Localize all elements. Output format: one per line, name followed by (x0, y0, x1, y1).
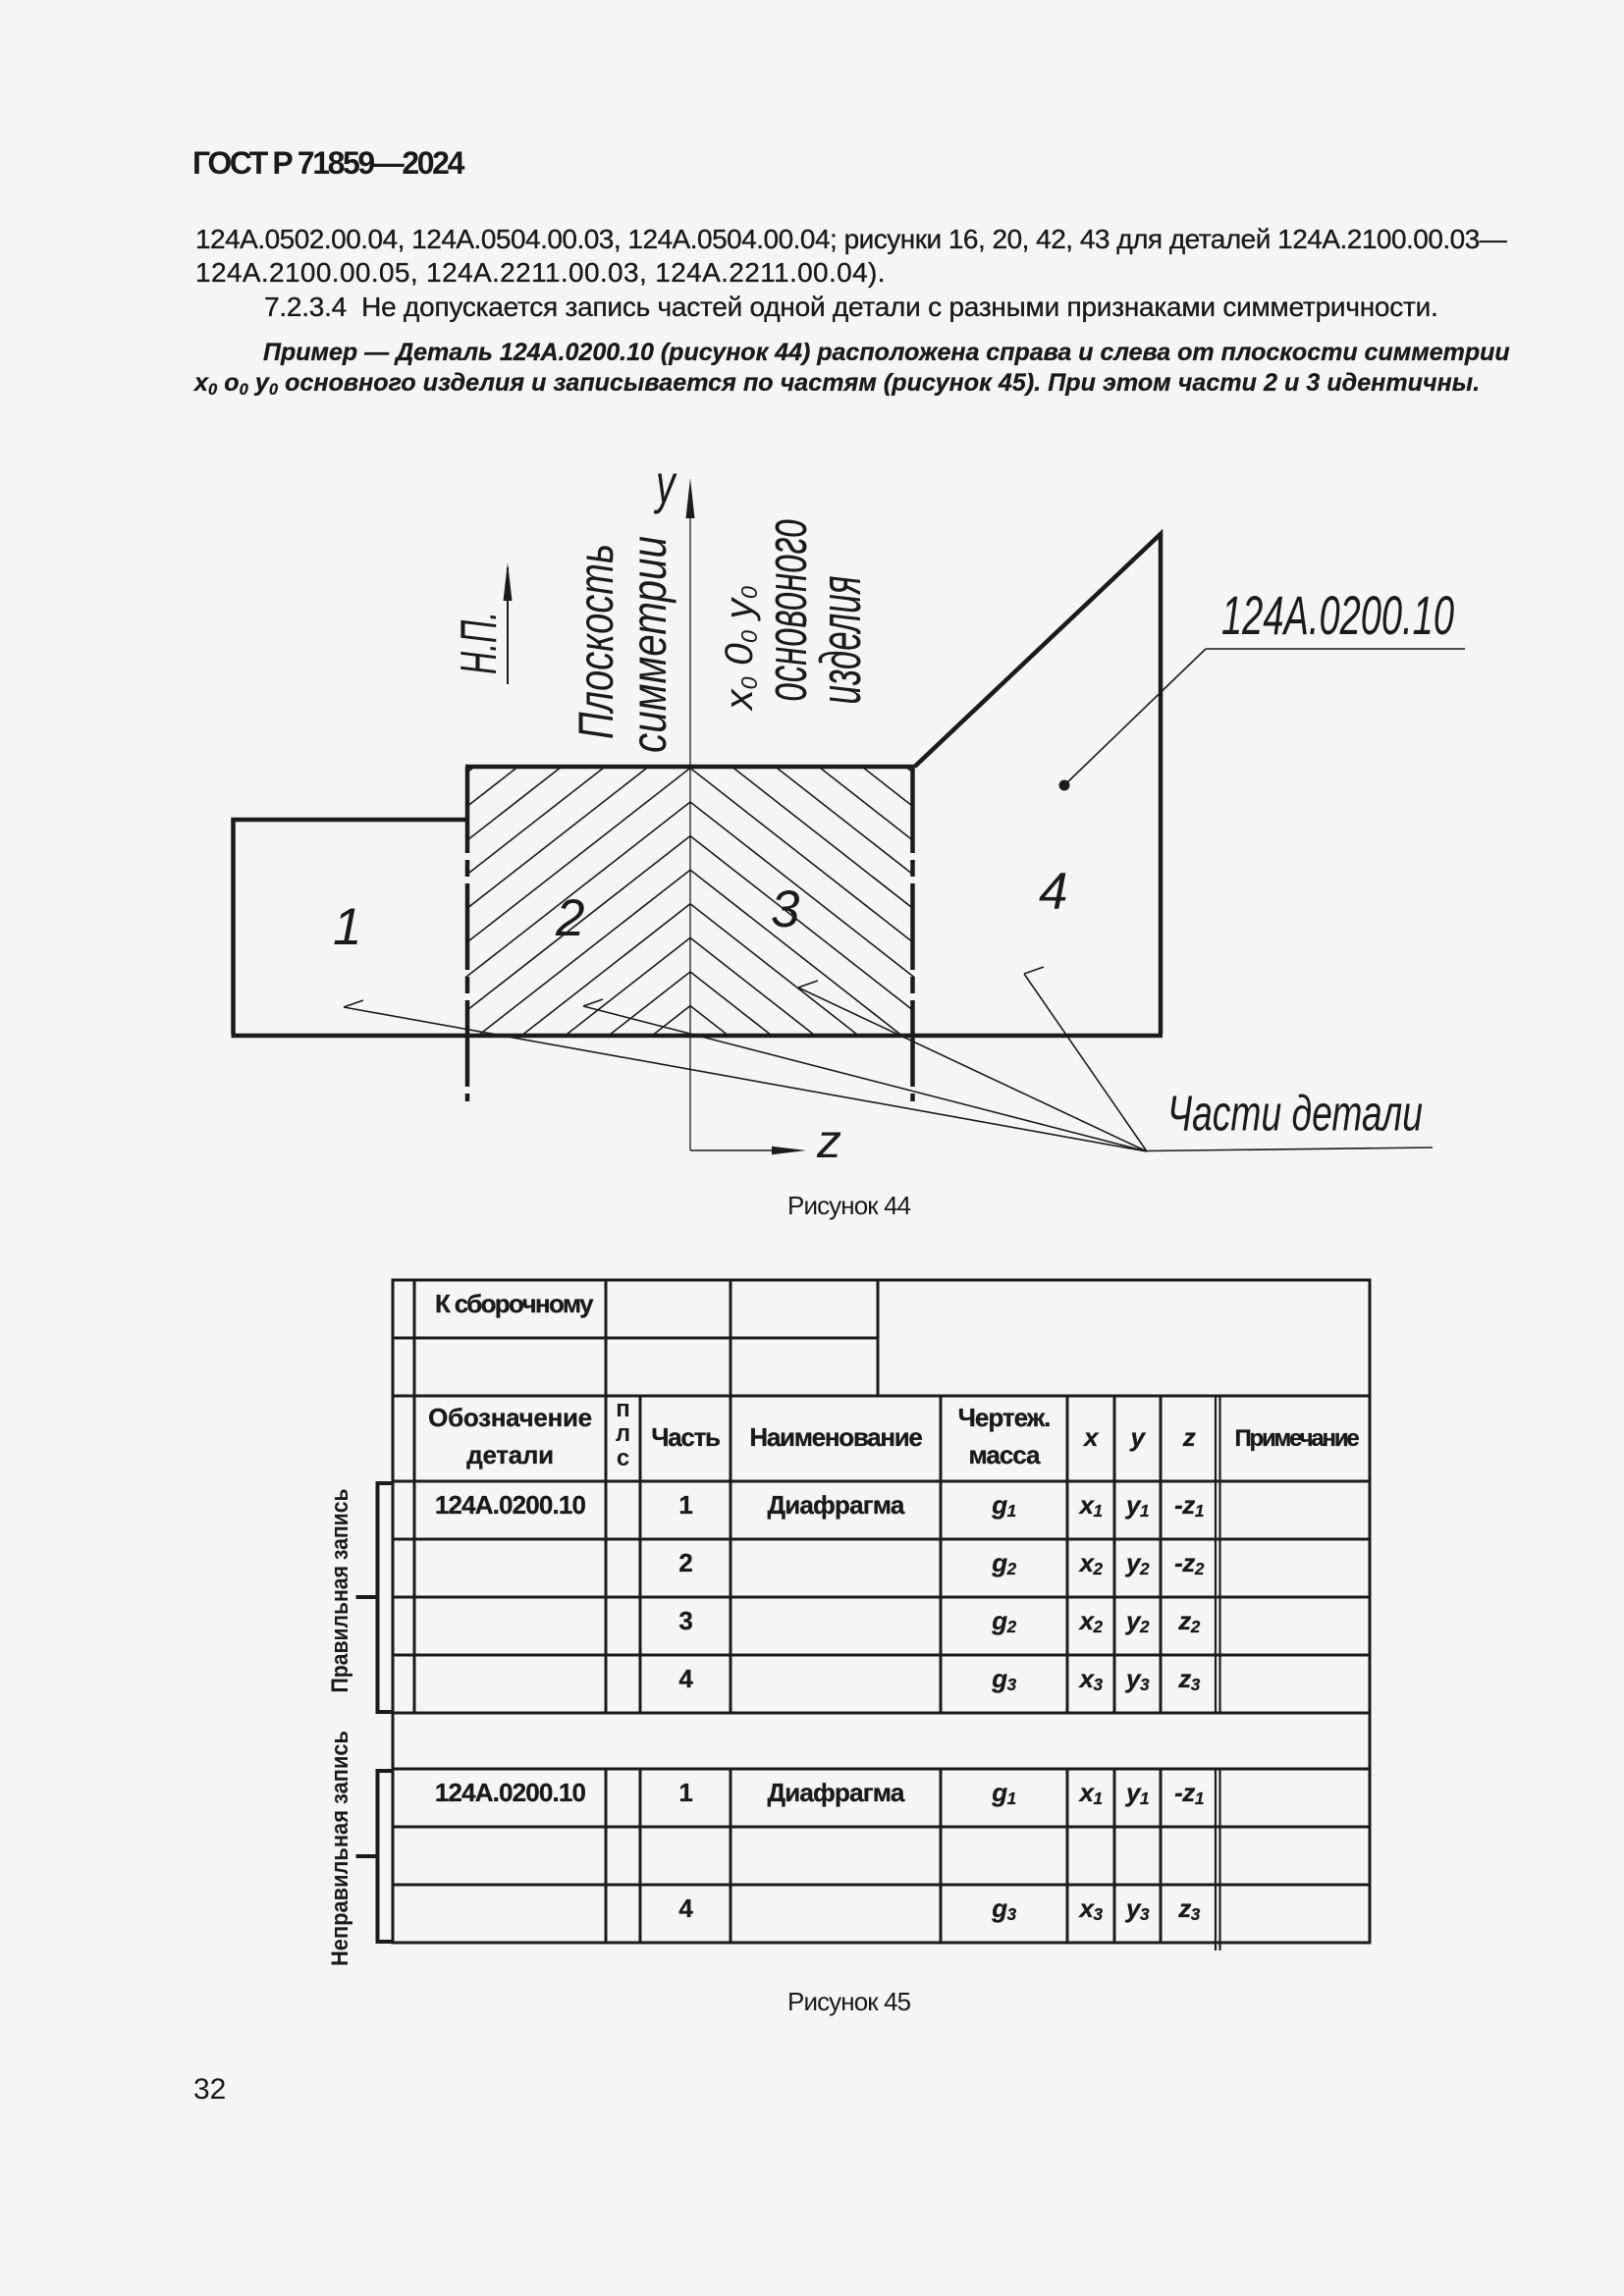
svg-text:Неправильная запись: Неправильная запись (327, 1731, 353, 1966)
svg-text:симметрии: симметрии (622, 536, 677, 753)
svg-text:Части детали: Части детали (1167, 1086, 1423, 1142)
svg-text:124А.0200.10: 124А.0200.10 (1221, 584, 1454, 646)
svg-text:z: z (816, 1116, 841, 1168)
svg-text:y: y (654, 454, 677, 515)
svg-text:Н.П.: Н.П. (451, 612, 508, 674)
svg-text:Правильная запись: Правильная запись (327, 1489, 353, 1693)
svg-text:2: 2 (555, 889, 584, 947)
svg-text:изделия: изделия (809, 576, 873, 705)
svg-text:Плоскость: Плоскость (568, 544, 623, 739)
svg-text:4: 4 (1039, 863, 1067, 921)
svg-text:1: 1 (333, 898, 361, 956)
svg-text:3: 3 (771, 881, 800, 938)
